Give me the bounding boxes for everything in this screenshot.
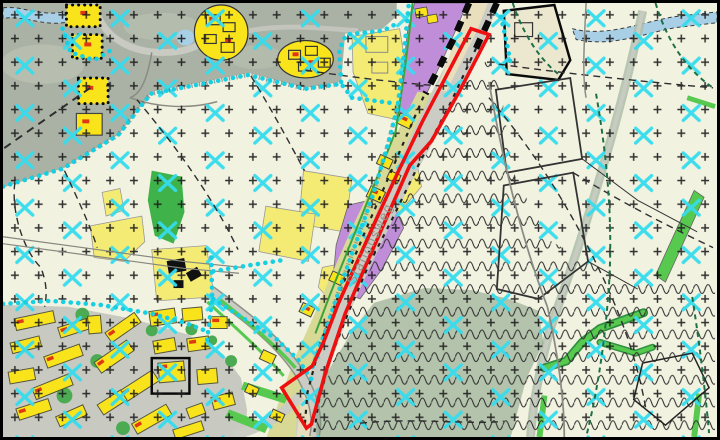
map-viewport[interactable]: Stationsweg xyxy=(0,0,720,440)
map-canvas[interactable]: Stationsweg xyxy=(3,3,717,437)
map-layers xyxy=(3,3,717,437)
